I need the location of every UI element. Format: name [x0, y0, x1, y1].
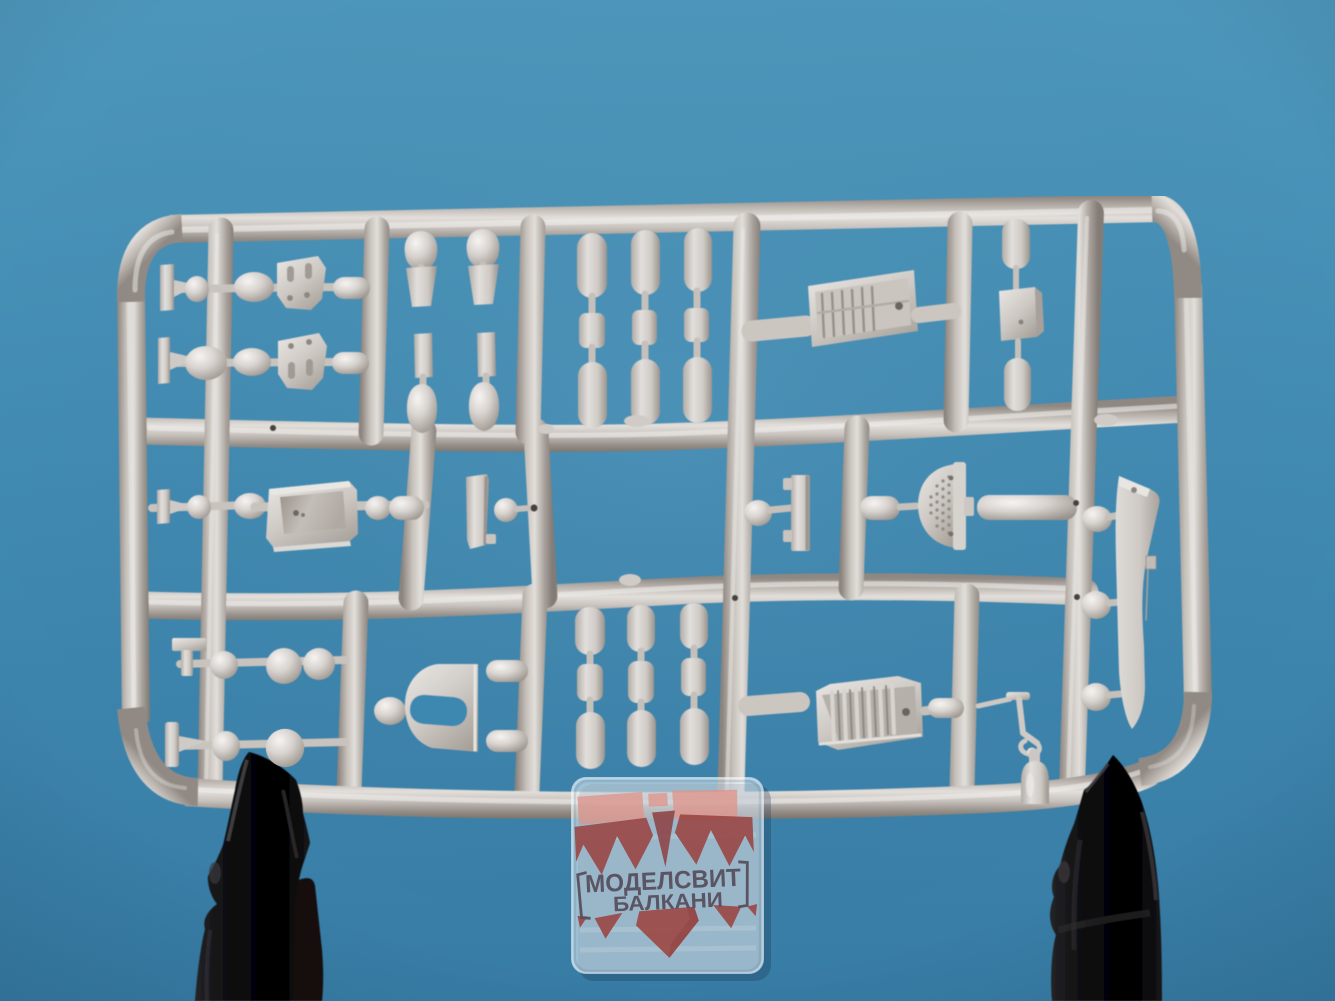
svg-text:БАЛКАНИ: БАЛКАНИ	[613, 889, 724, 917]
